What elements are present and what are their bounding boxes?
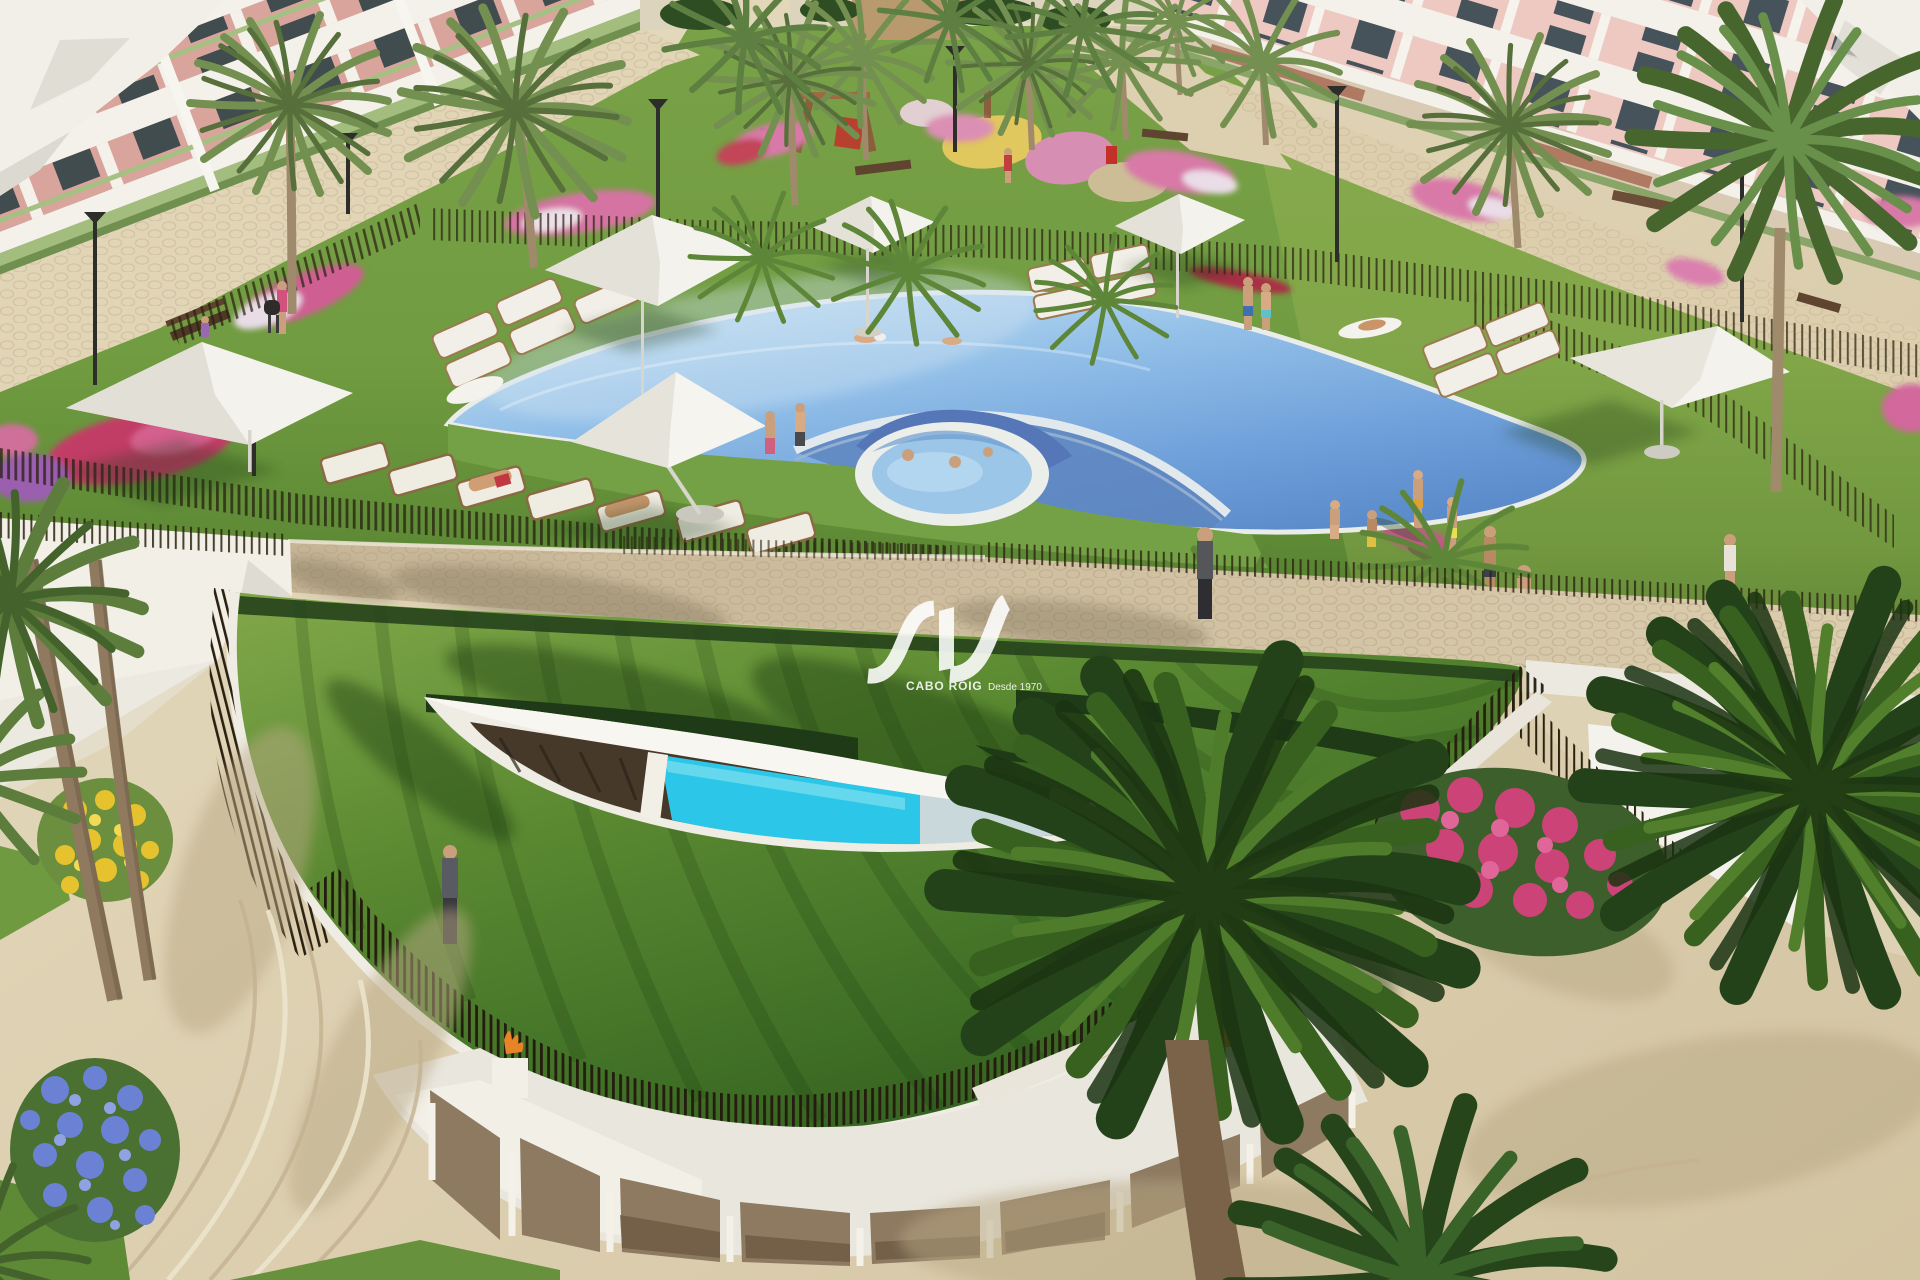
svg-text:Desde 1970: Desde 1970 xyxy=(988,682,1042,693)
svg-text:CABO ROIG: CABO ROIG xyxy=(906,679,983,693)
